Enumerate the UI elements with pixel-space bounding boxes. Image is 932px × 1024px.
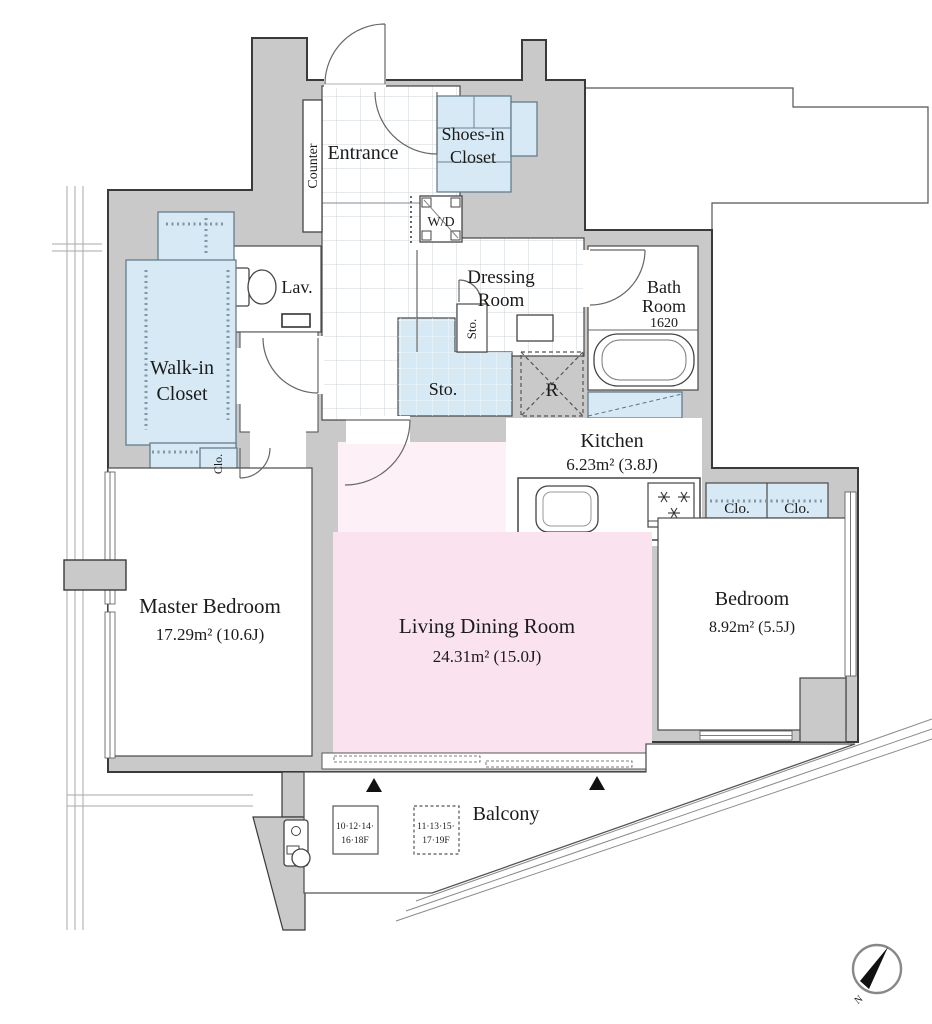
kitchen-overhead-cabinet (588, 392, 682, 418)
living-dining-area: 24.31m² (15.0J) (433, 647, 542, 666)
bedroom-south-window (700, 731, 792, 740)
north-label: N (853, 994, 866, 1007)
bed-closet-label-2: Clo. (784, 501, 809, 517)
master-door-opening (250, 430, 306, 470)
floor-tag-solid-2: 16·18F (341, 836, 368, 846)
bath-door-opening (583, 250, 591, 307)
floor-tag-dashed-1: 11·13·15· (417, 822, 455, 832)
bathtub (594, 334, 694, 386)
bath-label-1: Bath (647, 277, 681, 297)
shoes-closet-label-1: Shoes-in (442, 124, 505, 144)
entrance-door (325, 24, 385, 84)
master-west-windows (105, 472, 115, 758)
storage-large-label: Sto. (429, 379, 458, 399)
bedroom-corner-column (800, 678, 846, 742)
floor-tag-solid-1: 10·12·14· (336, 822, 374, 832)
refrigerator-label: R (546, 380, 559, 401)
hall-closet-label: Clo. (211, 454, 225, 474)
living-south-window (322, 753, 646, 769)
floor-plan: N Counter Entrance Shoes-in Closet W/D L… (0, 0, 932, 1024)
floor-tag-dashed-2: 17·19F (422, 836, 449, 846)
north-arrow: N (853, 945, 901, 1007)
bath-size-label: 1620 (650, 316, 678, 331)
bed-closet-label-1: Clo. (724, 501, 749, 517)
bedroom-area: 8.92m² (5.5J) (709, 619, 795, 636)
vestibule-opening (316, 336, 324, 394)
vestibule-floor (240, 332, 318, 432)
master-bedroom-name: Master Bedroom (139, 594, 281, 618)
dressing-label-2: Room (478, 290, 525, 311)
master-bedroom-area: 17.29m² (10.6J) (156, 625, 265, 644)
living-dining-name: Living Dining Room (399, 614, 575, 638)
lav-counter (282, 314, 310, 327)
balcony-side-wall (282, 772, 305, 817)
living-dining-upper (338, 442, 506, 542)
balcony-label: Balcony (473, 803, 540, 825)
bath-label-2: Room (642, 296, 686, 316)
kitchen-area: 6.23m² (3.8J) (566, 455, 658, 474)
kitchen-name: Kitchen (580, 430, 643, 452)
bedroom-name: Bedroom (715, 588, 790, 610)
west-pillar (64, 560, 126, 590)
floor-plan-svg: N Counter Entrance Shoes-in Closet W/D L… (0, 0, 932, 1024)
entrance-label: Entrance (327, 142, 398, 164)
living-dining-floor (333, 532, 652, 754)
walk-in-closet-label-1: Walk-in (150, 357, 214, 379)
storage-small-label: Sto. (464, 319, 479, 340)
dressing-label-1: Dressing (467, 267, 535, 288)
dressing-vanity (517, 315, 553, 341)
lavatory-label: Lav. (281, 277, 312, 297)
bath-room (588, 246, 698, 390)
toilet-bowl (248, 270, 276, 304)
kitchen-sink (536, 486, 598, 532)
bedroom-east-window (845, 492, 856, 676)
walk-in-closet-label-2: Closet (156, 383, 208, 405)
balcony-sink (284, 820, 310, 867)
shoes-closet-label-2: Closet (450, 147, 496, 167)
entrance-door-opening (324, 77, 386, 88)
counter-label: Counter (306, 143, 321, 188)
washer-dryer-label: W/D (427, 215, 454, 230)
neighbor-outline (546, 88, 928, 230)
